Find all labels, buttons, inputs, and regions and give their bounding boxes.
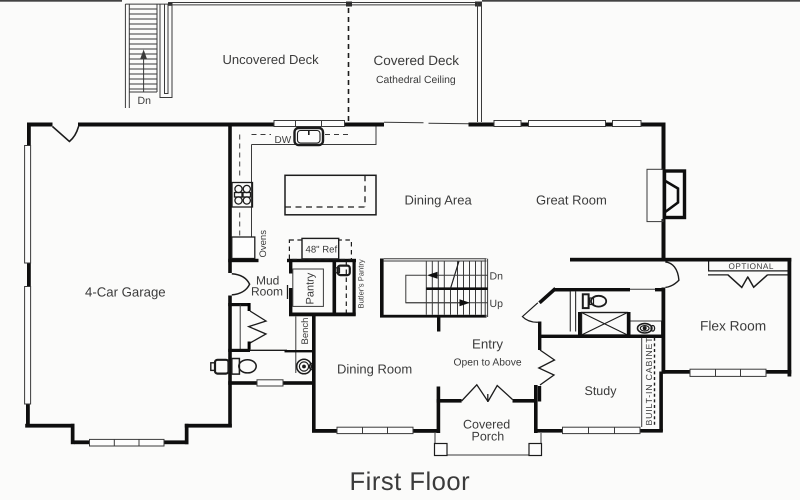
svg-text:Porch: Porch bbox=[472, 430, 505, 444]
svg-text:Cathedral Ceiling: Cathedral Ceiling bbox=[376, 75, 456, 86]
svg-text:Entry: Entry bbox=[472, 337, 503, 352]
svg-text:Bench: Bench bbox=[300, 318, 311, 345]
svg-text:First Floor: First Floor bbox=[350, 468, 471, 496]
svg-text:Flex Room: Flex Room bbox=[700, 319, 766, 334]
svg-text:BUILT-IN CABINET: BUILT-IN CABINET bbox=[644, 337, 654, 426]
svg-text:OPTIONAL: OPTIONAL bbox=[729, 262, 774, 271]
svg-text:Ovens: Ovens bbox=[258, 230, 269, 258]
svg-text:Open to Above: Open to Above bbox=[454, 358, 522, 369]
svg-text:Dn: Dn bbox=[490, 271, 504, 283]
svg-text:Study: Study bbox=[585, 384, 618, 398]
svg-text:Room: Room bbox=[251, 285, 283, 299]
svg-text:Great Room: Great Room bbox=[536, 193, 607, 208]
svg-text:Dn: Dn bbox=[138, 95, 152, 107]
svg-text:4-Car Garage: 4-Car Garage bbox=[85, 285, 166, 300]
svg-text:Up: Up bbox=[490, 298, 504, 310]
svg-text:Dining Room: Dining Room bbox=[337, 362, 412, 377]
svg-text:DW: DW bbox=[275, 135, 292, 146]
svg-text:Dining Area: Dining Area bbox=[405, 193, 473, 208]
svg-text:Covered Deck: Covered Deck bbox=[374, 53, 460, 68]
svg-text:Uncovered Deck: Uncovered Deck bbox=[223, 52, 320, 67]
svg-text:Butler's Pantry: Butler's Pantry bbox=[357, 259, 366, 308]
svg-text:48" Ref: 48" Ref bbox=[306, 245, 338, 256]
svg-text:Pantry: Pantry bbox=[305, 272, 317, 304]
